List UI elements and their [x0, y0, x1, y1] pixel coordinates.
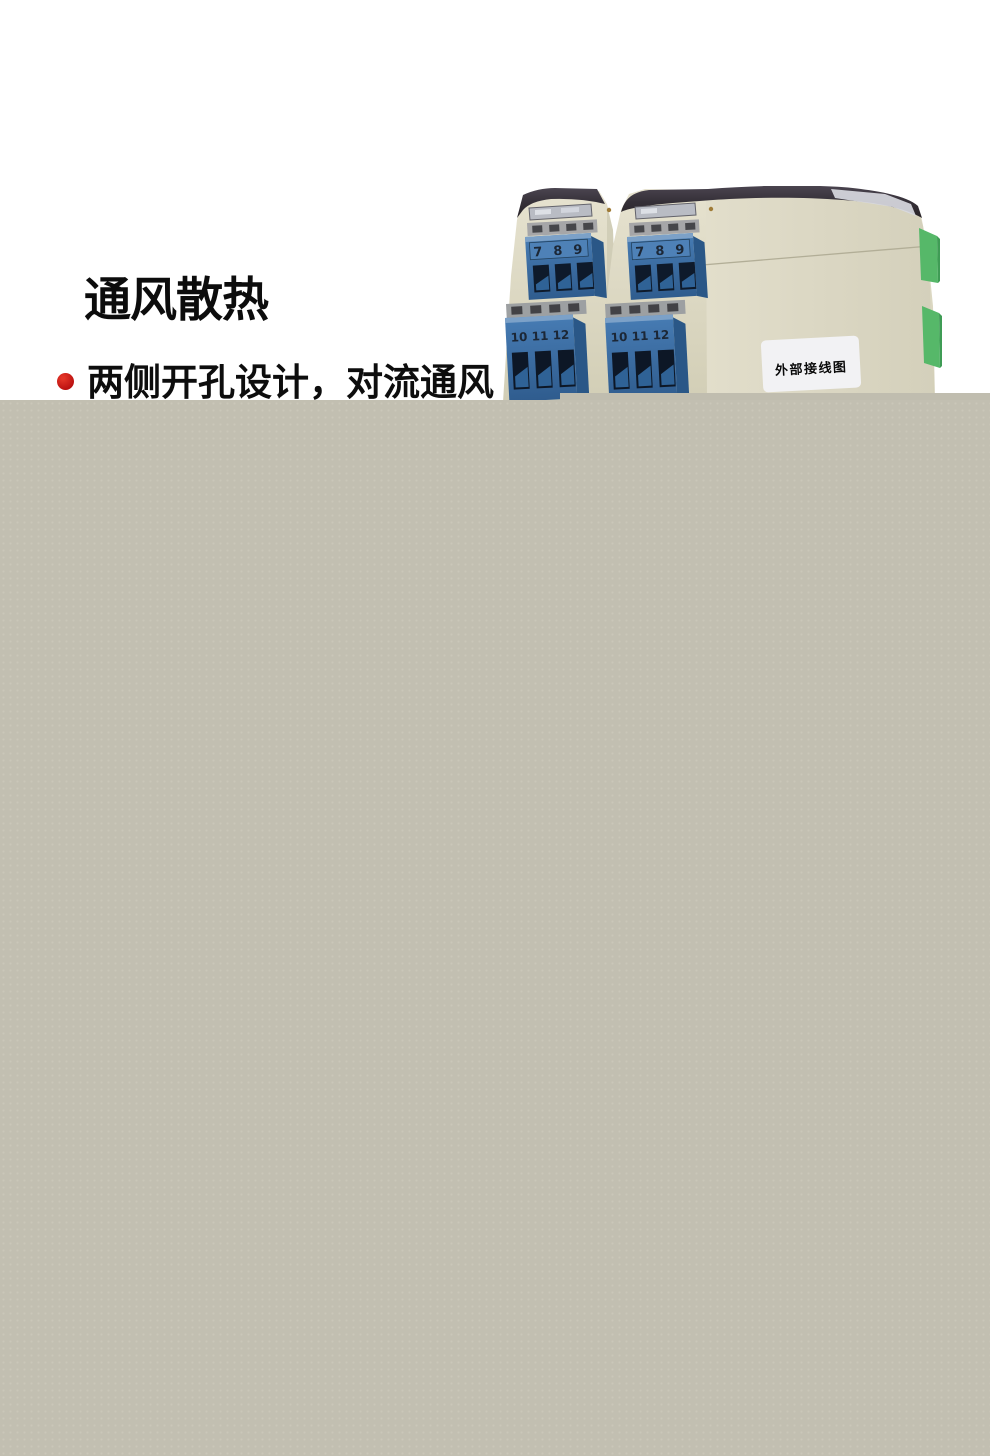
terminal-number: 7: [635, 245, 645, 261]
page-title: 通风散热: [84, 274, 268, 326]
terminal-number: 11: [631, 329, 648, 344]
module-right: 7 8 9: [601, 186, 942, 402]
terminal-number: 11: [531, 329, 548, 344]
terminal-number: 8: [553, 244, 563, 260]
terminal-number: 7: [533, 245, 543, 261]
module-left: 7 8 9: [503, 188, 615, 402]
window-highlight: [561, 207, 579, 213]
window-highlight: [535, 209, 551, 215]
window-highlight: [641, 208, 657, 214]
terminal-block-upper-left: 7 8 9: [525, 232, 607, 303]
terminal-block-upper-right: 7 8 9: [627, 232, 708, 303]
bullet-dot-icon: [57, 373, 74, 390]
terminal-number: 12: [552, 328, 569, 343]
terminal-number: 9: [675, 243, 685, 259]
green-connector-lower: [922, 306, 942, 368]
screw-dot: [607, 208, 611, 212]
terminal-number: 9: [573, 243, 583, 259]
feature-bullet-item: 两侧开孔设计，对流通风: [57, 364, 494, 403]
terminal-block-lower-left: 10 11 12: [505, 314, 589, 402]
terminal-block-lower-right: 10 11 12: [605, 314, 689, 402]
page: 通风散热 两侧开孔设计，对流通风: [0, 0, 990, 1456]
terminal-number: 10: [610, 330, 627, 345]
terminal-number: 10: [510, 330, 527, 345]
feature-text: 两侧开孔设计，对流通风: [87, 364, 494, 403]
green-connector-upper: [919, 228, 940, 283]
wiring-label: 外部接线图: [761, 335, 862, 392]
isolator-modules-illustration: 7 8 9: [493, 186, 943, 402]
terminal-number: 8: [655, 244, 665, 260]
terminal-number: 12: [652, 328, 669, 343]
khaki-panel: [0, 400, 990, 1456]
screw-dot: [709, 207, 713, 211]
product-photo: 7 8 9: [493, 186, 943, 402]
